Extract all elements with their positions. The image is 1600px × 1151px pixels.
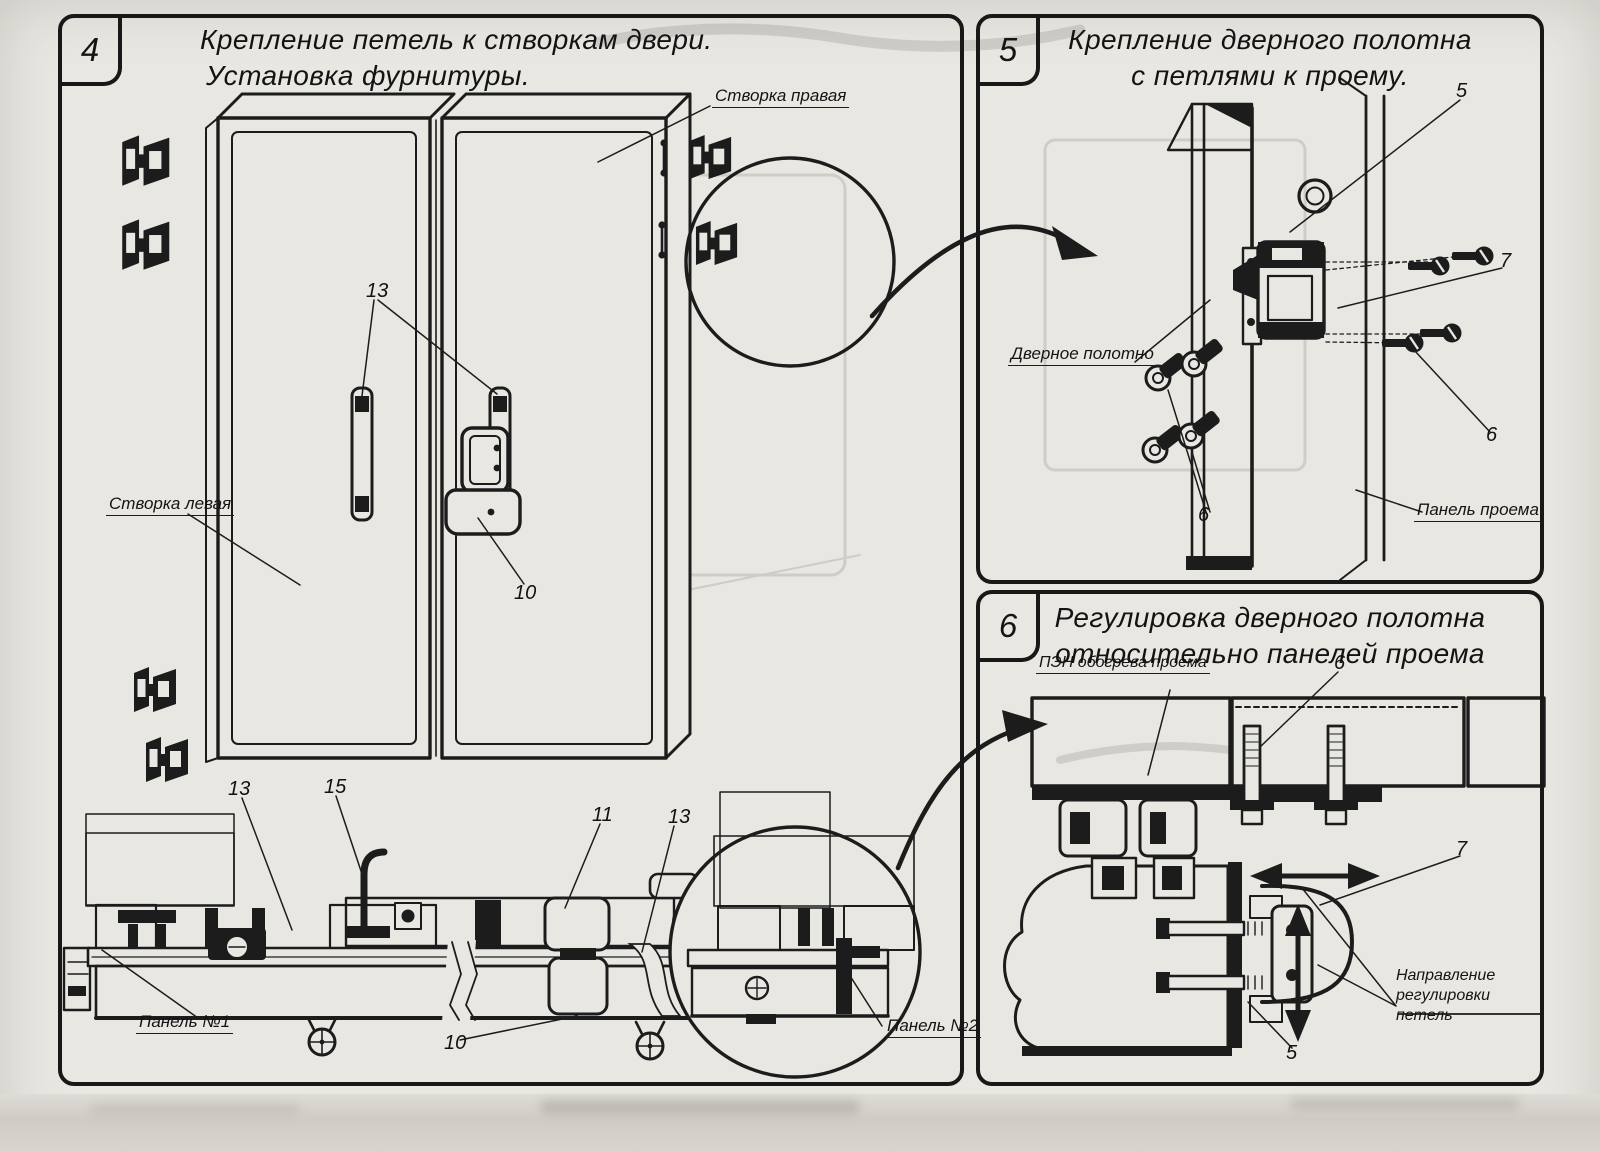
panel5-title-line1: Крепление дверного полотна (1068, 24, 1472, 55)
floor-detail-circle (670, 792, 920, 1077)
label-adjustment-direction-line2: петель (1396, 1006, 1546, 1026)
label-panel-1: Панель №1 (136, 1012, 233, 1034)
panel4-number: 4 (81, 31, 99, 69)
technical-drawing-canvas (0, 0, 1600, 1151)
bolt-icon (1156, 918, 1262, 993)
callout-13-handles: 13 (366, 280, 388, 303)
panel4-title-line2: Установка фурнитуры. (206, 58, 713, 94)
panel4-title: Крепление петель к створкам двери. Устан… (200, 22, 713, 94)
callout-7-hinge-plate: 7 (1456, 838, 1467, 861)
scan-smudge (1290, 1098, 1520, 1110)
callout-13-floor-left: 13 (228, 778, 250, 801)
label-panel-2: Панель №2 (884, 1016, 981, 1038)
label-left-leaf: Створка левая (106, 494, 234, 516)
callout-13-floor-right: 13 (668, 806, 690, 829)
callout-5-hinge: 5 (1456, 80, 1467, 103)
detail-arrow-icon (898, 710, 1048, 868)
panel5-title: Крепление дверного полотна с петлями к п… (1020, 22, 1520, 94)
panel5-title-line2: с петлями к проему. (1020, 58, 1520, 94)
callout-6-screws-right: 6 (1486, 424, 1497, 447)
callout-5-hinge: 5 (1286, 1042, 1297, 1065)
label-adjustment-direction-line1: Направление регулировки (1396, 966, 1546, 1006)
callout-6-screws-left: 6 (1198, 504, 1209, 527)
callout-7-plate: 7 (1500, 250, 1511, 273)
panel6-title-line1: Регулировка дверного полотна (1055, 602, 1486, 633)
callout-6-bolt: 6 (1334, 652, 1345, 675)
panel4-title-line1: Крепление петель к створкам двери. (200, 24, 713, 55)
detail-arrow-icon (872, 226, 1098, 316)
scan-smudge (90, 1104, 300, 1114)
callout-11-mechanism: 11 (592, 804, 613, 827)
label-opening-panel: Панель проема (1414, 500, 1542, 522)
scan-smudge (540, 1100, 860, 1114)
door-leaves-drawing (206, 94, 690, 762)
label-pen-heater: ПЭН обогрева проема (1036, 654, 1210, 674)
callout-10-latch: 10 (514, 582, 536, 605)
panel4-number-badge: 4 (62, 18, 122, 86)
callout-15-hook: 15 (324, 776, 346, 799)
label-right-leaf: Створка правая (712, 86, 849, 108)
callout-10-floor-latch: 10 (444, 1032, 466, 1055)
panel6-number: 6 (999, 607, 1017, 645)
hinge-icon (122, 135, 188, 782)
drawing-sheet: 4 5 6 Крепление петель к створкам двери.… (0, 0, 1600, 1151)
label-door-leaf: Дверное полотно (1008, 344, 1157, 366)
label-adjustment-direction: Направление регулировки петель (1394, 966, 1548, 1028)
panel5-number: 5 (999, 31, 1017, 69)
